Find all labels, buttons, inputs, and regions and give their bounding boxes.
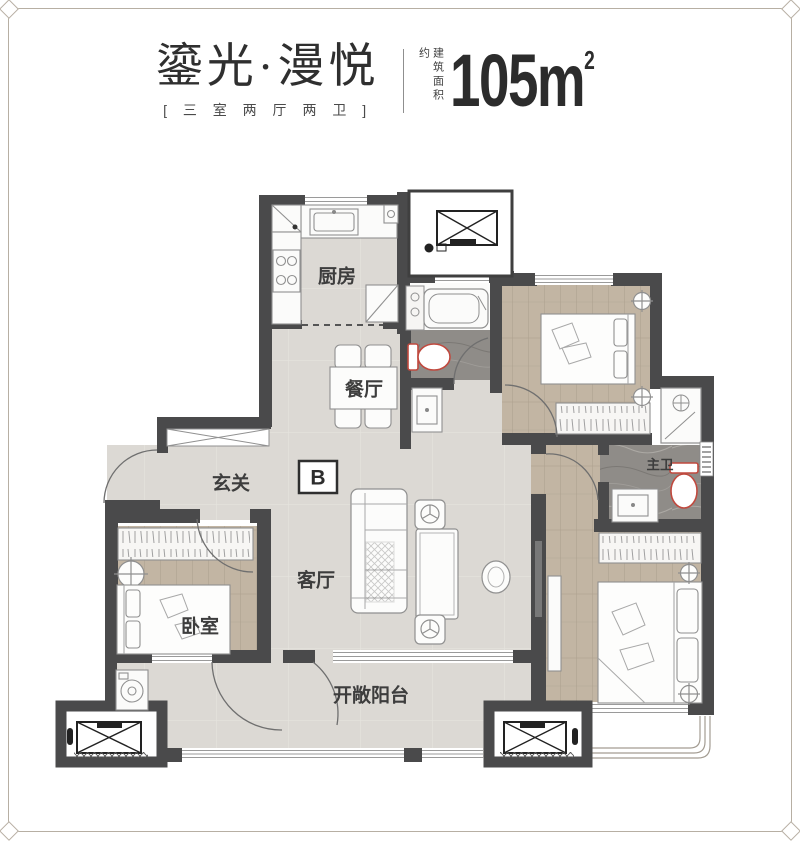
living-window bbox=[333, 650, 513, 663]
floor-plan-svg: B 厨房 餐厅 玄关 客厅 卧室 主卫 开敞阳台 bbox=[0, 0, 800, 841]
dining-label: 餐厅 bbox=[345, 378, 383, 401]
tv-bench bbox=[548, 576, 561, 671]
side-table bbox=[482, 561, 510, 593]
drain-icon bbox=[67, 728, 73, 745]
toilet-icon bbox=[408, 344, 450, 370]
bedroom-label: 卧室 bbox=[181, 615, 219, 638]
shower-icon bbox=[661, 388, 701, 443]
balcony-window-right bbox=[422, 748, 483, 760]
wardrobe bbox=[118, 528, 253, 560]
chair-icon bbox=[365, 345, 391, 369]
towel-rack-icon bbox=[700, 442, 713, 476]
drain-icon bbox=[572, 728, 578, 745]
bathtub-icon bbox=[424, 289, 488, 328]
unit-label: B bbox=[310, 467, 325, 490]
coffee-table bbox=[416, 529, 458, 619]
drain-icon bbox=[425, 244, 434, 253]
living-label: 客厅 bbox=[297, 569, 335, 592]
washing-machine-icon bbox=[116, 670, 148, 710]
pillow bbox=[126, 590, 140, 617]
sofa bbox=[351, 489, 407, 613]
bed bbox=[598, 582, 702, 703]
master-bath-label: 主卫 bbox=[647, 457, 675, 473]
pillow bbox=[677, 638, 698, 682]
kitchen-label: 厨房 bbox=[318, 265, 356, 288]
master-window bbox=[590, 702, 688, 715]
vanity-icon bbox=[412, 388, 442, 432]
equipment-platform-bottom-left bbox=[61, 706, 162, 762]
balcony-label: 开敞阳台 bbox=[333, 684, 409, 707]
balcony-railing bbox=[577, 716, 710, 758]
equipment-platform-bottom-center bbox=[489, 706, 587, 762]
floor-plan-page: { "header": { "title": "鎏光·漫悦", "subtitl… bbox=[0, 0, 800, 841]
balcony-window-left bbox=[182, 748, 404, 760]
foyer-label: 玄关 bbox=[212, 472, 250, 495]
shoe-cabinet bbox=[167, 429, 269, 446]
equipment-platform-top bbox=[409, 191, 512, 276]
stool-icon bbox=[415, 615, 445, 644]
wardrobe bbox=[556, 403, 650, 434]
cabinet-icon bbox=[384, 205, 398, 223]
pillow bbox=[126, 621, 140, 648]
bedroom1-window bbox=[535, 273, 613, 285]
toilet-icon bbox=[670, 463, 698, 508]
vanity-icon bbox=[612, 489, 658, 522]
unit-badge: B bbox=[299, 461, 337, 493]
kitchen-counter-left bbox=[272, 232, 301, 324]
bed bbox=[541, 314, 635, 384]
chair-icon bbox=[335, 345, 361, 369]
wardrobe bbox=[599, 533, 701, 563]
pillow bbox=[614, 351, 627, 378]
pillow bbox=[677, 589, 698, 633]
tv-icon bbox=[535, 541, 542, 617]
stool-icon bbox=[415, 500, 445, 529]
pillow bbox=[614, 319, 627, 346]
